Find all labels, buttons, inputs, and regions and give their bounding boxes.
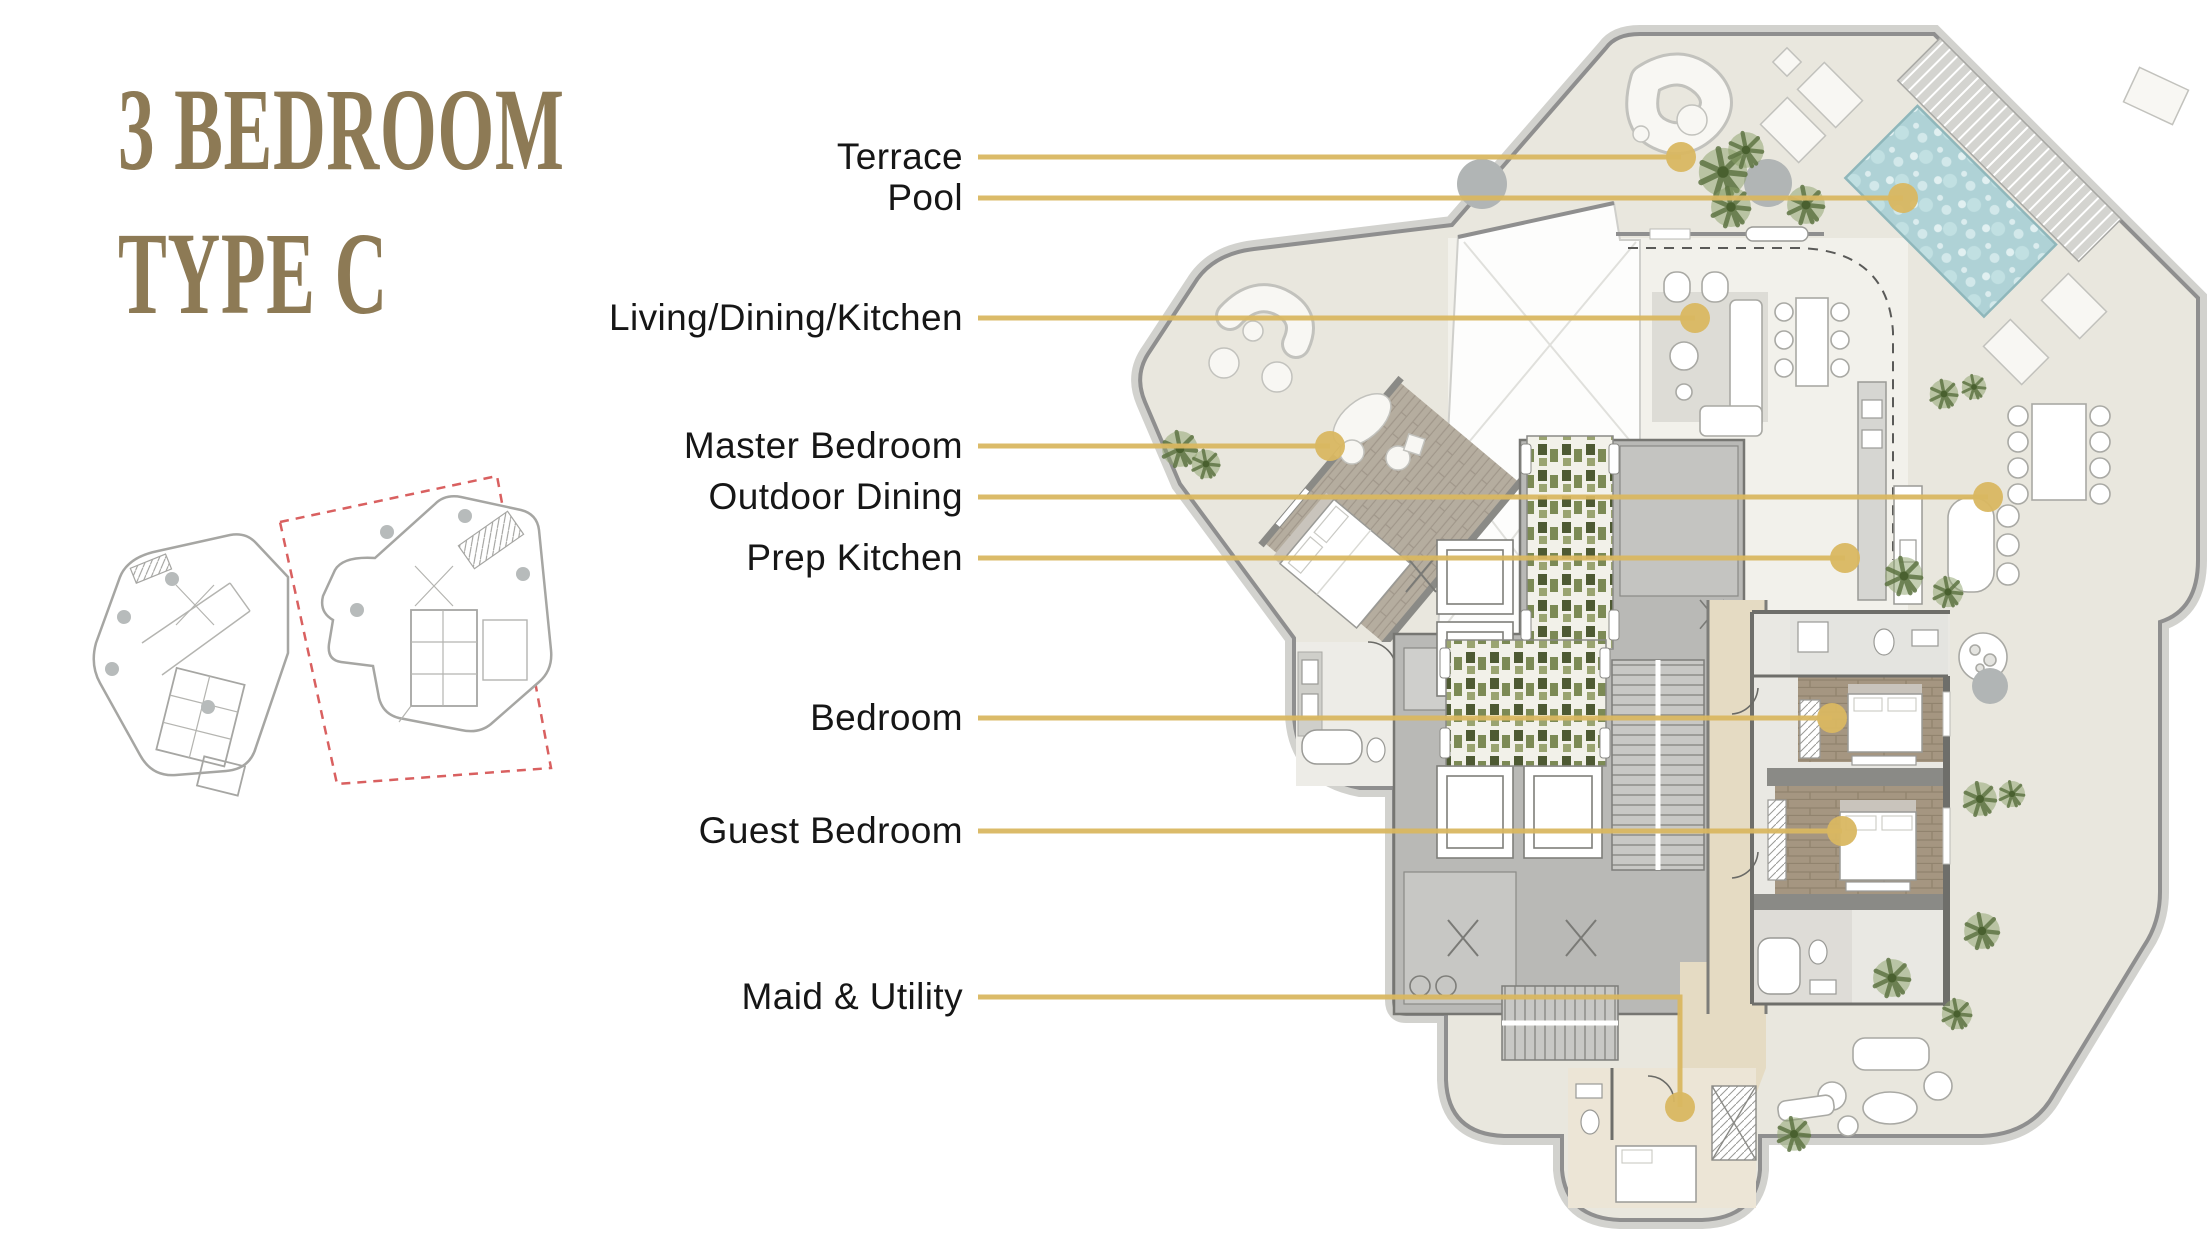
callout-label-guest-bedroom: Guest Bedroom bbox=[699, 805, 963, 857]
callout-label-prep-kitchen: Prep Kitchen bbox=[746, 532, 963, 584]
callout-label-maid-utility: Maid & Utility bbox=[742, 971, 963, 1023]
callout-label-outdoor-dining: Outdoor Dining bbox=[709, 471, 963, 523]
callout-dot-master-bedroom bbox=[1315, 431, 1345, 461]
callout-label-bedroom: Bedroom bbox=[810, 692, 963, 744]
callout-dot-living-dining-kitchen bbox=[1680, 303, 1710, 333]
stage: 3 BEDROOM TYPE C TerracePoolLiving/Dinin… bbox=[0, 0, 2208, 1238]
plan-title-line2: TYPE C bbox=[118, 202, 565, 346]
callout-dot-terrace bbox=[1666, 142, 1696, 172]
callout-dot-guest-bedroom bbox=[1827, 816, 1857, 846]
callout-dot-bedroom bbox=[1817, 703, 1847, 733]
callout-label-master-bedroom: Master Bedroom bbox=[684, 420, 963, 472]
plan-title-line1: 3 BEDROOM bbox=[118, 58, 565, 202]
callout-label-living-dining-kitchen: Living/Dining/Kitchen bbox=[609, 292, 963, 344]
plan-title: 3 BEDROOM TYPE C bbox=[118, 58, 565, 346]
callout-dot-maid-utility bbox=[1665, 1092, 1695, 1122]
leader-line-maid-utility bbox=[978, 997, 1680, 1107]
callout-dot-pool bbox=[1888, 183, 1918, 213]
callout-label-pool: Pool bbox=[887, 172, 963, 224]
callout-dot-prep-kitchen bbox=[1830, 543, 1860, 573]
floorplan-page: { "title": { "line1": "3 BEDROOM", "line… bbox=[0, 0, 2208, 1238]
callout-dot-outdoor-dining bbox=[1973, 482, 2003, 512]
